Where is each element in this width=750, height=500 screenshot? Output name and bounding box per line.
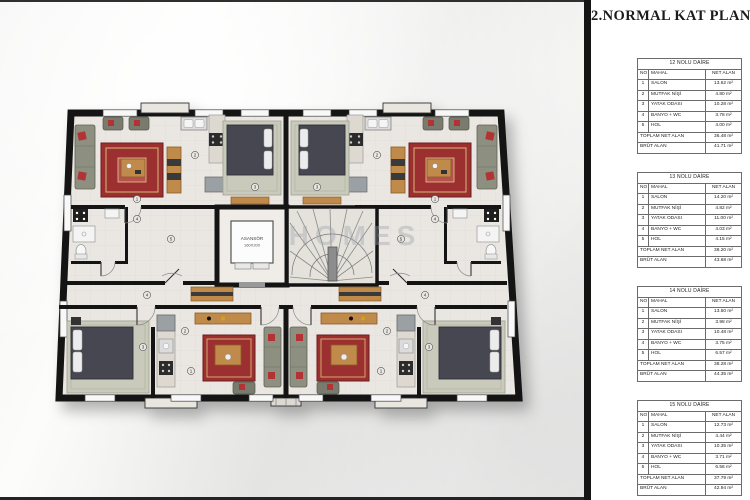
room-number: 3: [313, 183, 320, 190]
cell-no: 3: [638, 329, 649, 340]
cell-room: SALON: [649, 80, 706, 91]
label-toplam: TOPLAM NET ALAN: [638, 132, 706, 143]
apartment-table-13: 13 NOLU DAİRE NOMAHALNET ALAN 1SALON14.2…: [637, 172, 742, 268]
sideboard: [195, 313, 251, 324]
sofa: [290, 327, 307, 387]
col-header-netalan: NET ALAN: [706, 183, 742, 194]
cell-area: 10.28 m²: [706, 101, 742, 112]
info-panel: 2.NORMAL KAT PLANI 12 NOLU DAİRE NOMAHAL…: [584, 0, 750, 500]
cell-room: BANYO + WC: [649, 339, 706, 350]
sofa: [264, 327, 281, 387]
cell-area: 3.71 m²: [706, 453, 742, 464]
cell-no: 3: [638, 215, 649, 226]
room-number: 4: [421, 291, 428, 298]
room-number: 1: [431, 195, 438, 202]
cell-area: 3.75 m²: [706, 339, 742, 350]
col-header-mahal: MAHAL: [649, 411, 706, 422]
label-brut: BRÜT ALAN: [638, 485, 706, 496]
apartment-title: 12 NOLU DAİRE: [638, 59, 742, 70]
cell-toplam: 38.28 m²: [706, 360, 742, 371]
cell-area: 4.03 m²: [706, 225, 742, 236]
col-header-no: NO: [638, 183, 649, 194]
cell-brut: 42.94 m²: [706, 485, 742, 496]
sideboard: [321, 313, 377, 324]
label-brut: BRÜT ALAN: [638, 257, 706, 268]
col-header-no: NO: [638, 411, 649, 422]
sofa: [477, 125, 497, 189]
cell-area: 4.82 m²: [706, 204, 742, 215]
room-number: 2: [373, 151, 380, 158]
apartment-title: 14 NOLU DAİRE: [638, 287, 742, 298]
cell-room: HOL: [649, 236, 706, 247]
col-header-netalan: NET ALAN: [706, 411, 742, 422]
label-brut: BRÜT ALAN: [638, 371, 706, 382]
cell-no: 4: [638, 453, 649, 464]
cell-area: 4.00 m²: [706, 122, 742, 133]
tv-unit: [391, 147, 405, 193]
writing-table: [331, 345, 357, 365]
room-number: 4: [133, 215, 140, 222]
room-number: 1: [377, 367, 384, 374]
cell-brut: 43.68 m²: [706, 257, 742, 268]
cell-brut: 41.71 m²: [706, 143, 742, 154]
cell-no: 4: [638, 225, 649, 236]
label-toplam: TOPLAM NET ALAN: [638, 360, 706, 371]
cell-no: 2: [638, 90, 649, 101]
bedroom: [291, 121, 349, 204]
cell-room: MUTFAK NİŞİ: [649, 318, 706, 329]
cell-room: MUTFAK NİŞİ: [649, 204, 706, 215]
col-header-netalan: NET ALAN: [706, 69, 742, 80]
cell-area: 10.35 m²: [706, 443, 742, 454]
coffee-table: [121, 159, 145, 177]
cell-room: HOL: [649, 350, 706, 361]
elevator: ASANSÖR 160X200: [217, 207, 287, 287]
elevator-label: ASANSÖR: [241, 235, 264, 241]
room-number: 4: [431, 215, 438, 222]
cell-room: SALON: [649, 422, 706, 433]
cell-no: 5: [638, 236, 649, 247]
room-number: 5: [167, 235, 174, 242]
col-header-mahal: MAHAL: [649, 69, 706, 80]
cell-area: 11.00 m²: [706, 215, 742, 226]
cell-room: SALON: [649, 308, 706, 319]
cell-area: 3.98 m²: [706, 318, 742, 329]
watermark: HOMES: [289, 220, 422, 251]
room-number: 2: [181, 327, 188, 334]
apartment-title: 13 NOLU DAİRE: [638, 173, 742, 184]
coffee-table: [427, 159, 451, 177]
cell-no: 1: [638, 422, 649, 433]
apartment-table-14: 14 NOLU DAİRE NOMAHALNET ALAN 1SALON13.5…: [637, 286, 742, 382]
col-header-no: NO: [638, 297, 649, 308]
cell-area: 4.44 m²: [706, 432, 742, 443]
cell-no: 3: [638, 443, 649, 454]
room-number: 1: [133, 195, 140, 202]
cell-area: 12.73 m²: [706, 422, 742, 433]
col-header-no: NO: [638, 69, 649, 80]
kitchen-counter: [157, 315, 175, 387]
cell-brut: 44.35 m²: [706, 371, 742, 382]
cell-area: 13.50 m²: [706, 308, 742, 319]
cell-no: 3: [638, 101, 649, 112]
cell-no: 5: [638, 350, 649, 361]
cell-room: SALON: [649, 194, 706, 205]
cell-no: 2: [638, 204, 649, 215]
col-header-mahal: MAHAL: [649, 183, 706, 194]
cell-room: HOL: [649, 464, 706, 475]
cell-no: 4: [638, 111, 649, 122]
sofa: [75, 125, 95, 189]
page-title: 2.NORMAL KAT PLANI: [591, 8, 750, 25]
cell-area: 4.80 m²: [706, 90, 742, 101]
cell-area: 4.15 m²: [706, 236, 742, 247]
cell-area: 6.57 m²: [706, 350, 742, 361]
apartment-table-12: 12 NOLU DAİRE NOMAHALNET ALAN 1SALON13.6…: [637, 58, 742, 154]
floor-plan: ASANSÖR 160X200: [45, 95, 545, 430]
room-number: 3: [425, 343, 432, 350]
cell-room: BANYO + WC: [649, 453, 706, 464]
tv-unit: [167, 147, 181, 193]
cell-room: YATAK ODASI: [649, 329, 706, 340]
cell-room: BANYO + WC: [649, 225, 706, 236]
col-header-netalan: NET ALAN: [706, 297, 742, 308]
cell-area: 10.48 m²: [706, 329, 742, 340]
cell-area: 6.56 m²: [706, 464, 742, 475]
armchair: [233, 382, 255, 394]
cell-area: 3.78 m²: [706, 111, 742, 122]
label-brut: BRÜT ALAN: [638, 143, 706, 154]
cell-no: 2: [638, 318, 649, 329]
cell-toplam: 36.48 m²: [706, 132, 742, 143]
label-toplam: TOPLAM NET ALAN: [638, 246, 706, 257]
cell-no: 1: [638, 308, 649, 319]
cell-toplam: 37.79 m²: [706, 474, 742, 485]
apartment-title: 15 NOLU DAİRE: [638, 401, 742, 412]
cell-no: 2: [638, 432, 649, 443]
screenshot-root: { "page": { "title": "2.NORMAL KAT PLANI…: [0, 0, 750, 500]
cell-no: 1: [638, 194, 649, 205]
cell-area: 13.62 m²: [706, 80, 742, 91]
cell-area: 14.20 m²: [706, 194, 742, 205]
room-number: 4: [143, 291, 150, 298]
cell-room: BANYO + WC: [649, 111, 706, 122]
cell-room: YATAK ODASI: [649, 443, 706, 454]
room-number: 3: [139, 343, 146, 350]
room-number: 2: [383, 327, 390, 334]
room-number: 1: [187, 367, 194, 374]
cell-room: MUTFAK NİŞİ: [649, 90, 706, 101]
cell-no: 1: [638, 80, 649, 91]
bedroom: [423, 317, 505, 393]
bedroom: [67, 317, 149, 393]
apartment-table-15: 15 NOLU DAİRE NOMAHALNET ALAN 1SALON12.7…: [637, 400, 742, 496]
cell-no: 5: [638, 122, 649, 133]
bedroom: [223, 121, 281, 204]
elevator-size-label: 160X200: [244, 243, 261, 248]
room-number: 2: [191, 151, 198, 158]
col-header-mahal: MAHAL: [649, 297, 706, 308]
cell-room: YATAK ODASI: [649, 101, 706, 112]
room-number: 3: [251, 183, 258, 190]
cell-room: MUTFAK NİŞİ: [649, 432, 706, 443]
cell-toplam: 38.20 m²: [706, 246, 742, 257]
writing-table: [215, 345, 241, 365]
cell-no: 5: [638, 464, 649, 475]
cell-no: 4: [638, 339, 649, 350]
armchair: [317, 382, 339, 394]
cell-room: HOL: [649, 122, 706, 133]
kitchen-counter: [397, 315, 415, 387]
label-toplam: TOPLAM NET ALAN: [638, 474, 706, 485]
cell-room: YATAK ODASI: [649, 215, 706, 226]
